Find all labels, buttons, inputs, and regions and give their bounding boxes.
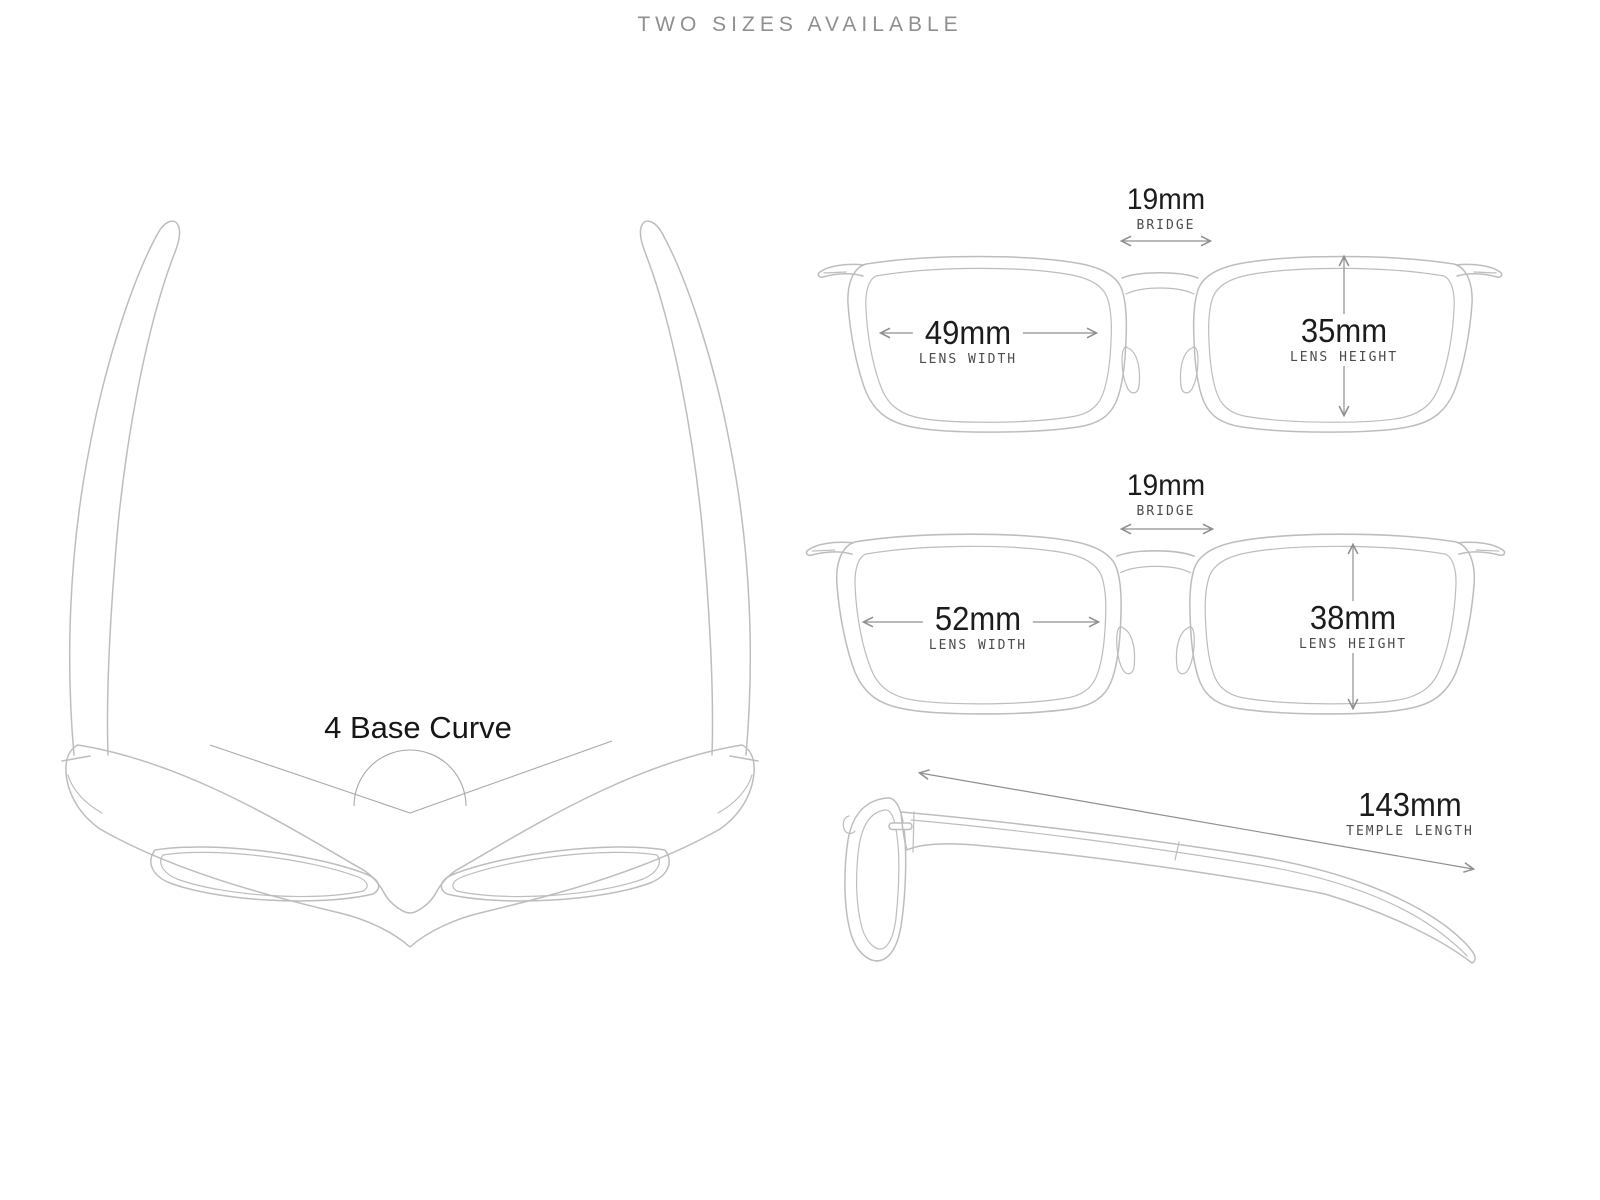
size-two-lens-height-label: LENS HEIGHT (1299, 637, 1407, 653)
size-two-lens-width-measure: 52mm LENS WIDTH (923, 602, 1033, 654)
temple-length-label: TEMPLE LENGTH (1346, 824, 1474, 840)
base-curve-label: 4 Base Curve (324, 712, 512, 744)
size-two-bridge-label: BRIDGE (1124, 504, 1207, 520)
size-one-lens-height-measure: 35mm LENS HEIGHT (1284, 314, 1404, 366)
size-two-lens-height-measure: 38mm LENS HEIGHT (1293, 601, 1413, 653)
base-curve-arc (354, 750, 466, 806)
size-two-lens-width-label: LENS WIDTH (929, 638, 1027, 654)
temple-length-value: 143mm (1350, 788, 1470, 822)
size-two-lens-width-value: 52mm (932, 602, 1024, 636)
size-two-bridge-measure: 19mm BRIDGE (1118, 470, 1213, 520)
size-one-lens-width-value: 49mm (922, 316, 1014, 350)
size-one-bridge-value: 19mm (1127, 184, 1205, 216)
size-one-lens-width-measure: 49mm LENS WIDTH (913, 316, 1023, 368)
size-two-bridge-value: 19mm (1127, 470, 1205, 502)
size-one-bridge-measure: 19mm BRIDGE (1118, 184, 1213, 234)
size-guide-diagram: TWO SIZES AVAILABLE (0, 0, 1600, 1200)
temple-length-measure: 143mm TEMPLE LENGTH (1340, 788, 1480, 840)
base-curve-right-line (410, 741, 612, 813)
size-one-bridge-label: BRIDGE (1124, 218, 1207, 234)
size-one-lens-width-label: LENS WIDTH (919, 352, 1017, 368)
size-one-lens-height-value: 35mm (1293, 314, 1395, 348)
base-curve-left-line (210, 745, 410, 813)
size-one-lens-height-label: LENS HEIGHT (1290, 350, 1398, 366)
size-two-lens-height-value: 38mm (1302, 601, 1404, 635)
